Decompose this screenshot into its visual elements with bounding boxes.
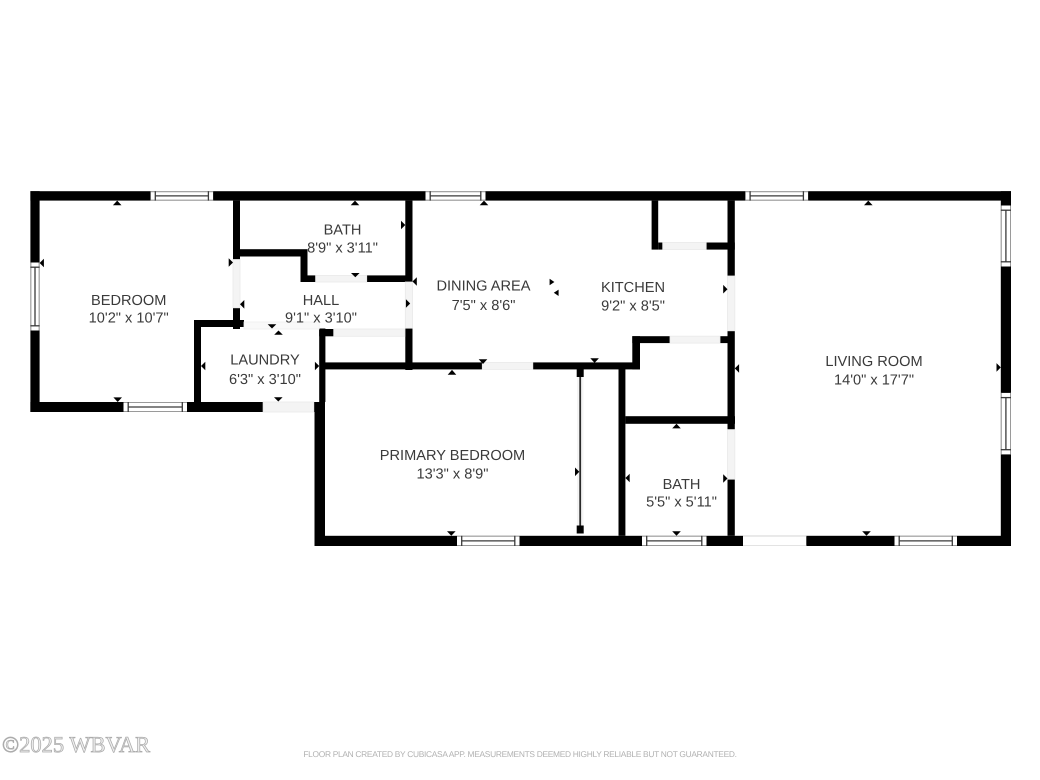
- svg-text:9'2" x 8'5": 9'2" x 8'5": [601, 299, 665, 315]
- svg-text:10'2" x 10'7": 10'2" x 10'7": [89, 311, 169, 327]
- svg-text:LIVING ROOM: LIVING ROOM: [825, 354, 922, 370]
- svg-text:6'3" x 3'10": 6'3" x 3'10": [229, 372, 301, 388]
- svg-text:7'5" x 8'6": 7'5" x 8'6": [452, 298, 516, 314]
- svg-text:BATH: BATH: [324, 223, 362, 239]
- svg-text:9'1" x 3'10": 9'1" x 3'10": [285, 311, 357, 327]
- svg-text:BEDROOM: BEDROOM: [91, 293, 166, 309]
- svg-text:FLOOR PLAN CREATED BY CUBICASA: FLOOR PLAN CREATED BY CUBICASA APP. MEAS…: [303, 749, 736, 759]
- svg-text:KITCHEN: KITCHEN: [601, 280, 665, 296]
- svg-text:14'0" x 17'7": 14'0" x 17'7": [834, 373, 914, 389]
- svg-text:13'3" x 8'9": 13'3" x 8'9": [417, 467, 489, 483]
- svg-text:©2025 WBVAR: ©2025 WBVAR: [2, 732, 150, 757]
- svg-text:BATH: BATH: [663, 477, 701, 493]
- svg-text:LAUNDRY: LAUNDRY: [230, 353, 300, 369]
- svg-text:HALL: HALL: [303, 293, 340, 309]
- svg-text:PRIMARY BEDROOM: PRIMARY BEDROOM: [380, 448, 525, 464]
- svg-text:DINING AREA: DINING AREA: [436, 278, 530, 294]
- svg-text:5'5" x 5'11": 5'5" x 5'11": [646, 495, 717, 511]
- svg-text:8'9" x 3'11": 8'9" x 3'11": [307, 241, 378, 257]
